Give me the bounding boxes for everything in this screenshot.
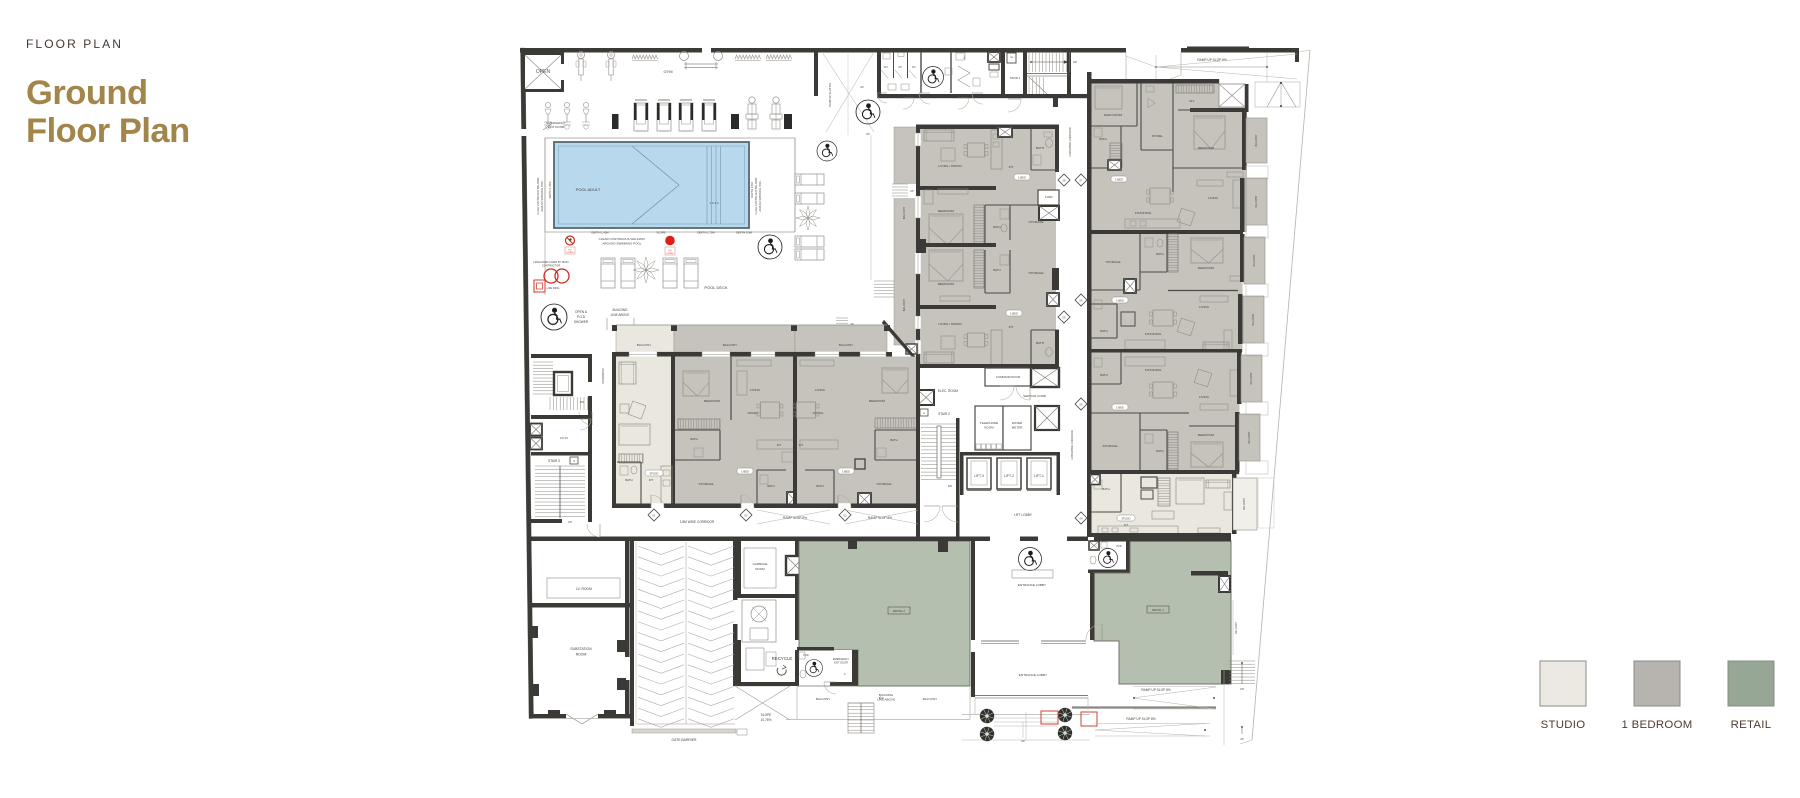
svg-text:POD: POD [803,654,808,657]
svg-text:BATH: BATH [1100,373,1107,377]
svg-text:METER: METER [1012,426,1023,430]
svg-text:Floor Plan: Floor Plan [26,112,190,150]
svg-text:CLEAR CONTINUOUS WALKWAY: CLEAR CONTINUOUS WALKWAY [599,237,646,241]
svg-text:GYM: GYM [663,69,672,74]
svg-text:SERVICE CORR.: SERVICE CORR. [1023,394,1047,398]
svg-text:STORAGE: STORAGE [1105,260,1120,264]
svg-text:UP: UP [1240,687,1244,691]
svg-text:BATH: BATH [1036,146,1044,150]
svg-text:COMMAND ROOM: COMMAND ROOM [996,375,1021,379]
svg-text:BALCONY: BALCONY [902,299,906,312]
svg-text:KIT: KIT [799,443,804,447]
svg-text:10.75%: 10.75% [761,718,772,722]
svg-text:BATH: BATH [1156,449,1163,453]
svg-text:1-BED: 1-BED [1018,176,1026,180]
svg-text:CLEAR CONTINUOUS WALKWAY: CLEAR CONTINUOUS WALKWAY [537,177,540,215]
svg-text:SLOPE: SLOPE [657,231,666,235]
svg-text:OPEN: OPEN [536,69,551,75]
svg-text:DN: DN [948,484,952,488]
svg-text:CORRIDOR: CORRIDOR [601,368,605,383]
svg-text:DN: DN [580,400,584,404]
svg-text:BEDROOM: BEDROOM [1198,146,1214,150]
svg-text:BEDROOM: BEDROOM [1198,266,1214,270]
svg-text:BATH: BATH [890,438,897,442]
svg-text:KIT: KIT [1009,325,1014,329]
svg-text:LIFT-1: LIFT-1 [1034,474,1044,478]
svg-text:RECYCLE: RECYCLE [772,656,793,661]
svg-text:RETAIL: RETAIL [1731,719,1772,731]
svg-text:SH: SH [898,66,902,69]
svg-text:BALCONY: BALCONY [1255,195,1258,207]
svg-text:LIFEGUARD CHAIR BY MAIN: LIFEGUARD CHAIR BY MAIN [534,260,569,264]
svg-text:SUBSTATION: SUBSTATION [570,647,592,651]
svg-text:KIT: KIT [1009,165,1014,169]
svg-text:AROUND SWIMMING POOL: AROUND SWIMMING POOL [759,180,762,212]
svg-text:EXIT DOOR: EXIT DOOR [548,125,565,129]
svg-text:LIFT-3: LIFT-3 [974,474,984,478]
svg-text:BALCONY: BALCONY [1253,254,1256,266]
svg-text:KIT/DINING: KIT/DINING [1135,211,1152,215]
svg-text:1.80M WIDE CORRIDOR: 1.80M WIDE CORRIDOR [1070,430,1074,460]
svg-text:ELEC. ROOM: ELEC. ROOM [938,389,958,393]
svg-text:CONTRACTOR: CONTRACTOR [542,264,560,268]
svg-text:STORAGE: STORAGE [698,482,713,486]
svg-text:Ground: Ground [26,74,148,112]
svg-text:AROUND SWIMMING POOL: AROUND SWIMMING POOL [602,242,641,246]
svg-text:RAMP UP SLOP 8%: RAMP UP SLOP 8% [1197,58,1226,62]
svg-text:1 BEDROOM: 1 BEDROOM [1621,719,1692,731]
svg-text:1-BED: 1-BED [1116,299,1124,303]
svg-text:LIVING: LIVING [1199,305,1210,309]
svg-text:BATH: BATH [1036,341,1044,345]
svg-text:TELEPHONE: TELEPHONE [980,421,998,425]
svg-text:BATH: BATH [993,268,1000,272]
svg-text:STORE: STORE [1152,134,1163,138]
svg-text:POOL DECK: POOL DECK [704,285,728,290]
svg-text:BATH: BATH [690,437,697,441]
svg-text:LIFE RING: LIFE RING [547,286,560,290]
svg-text:AROUND SWIMMING POOL: AROUND SWIMMING POOL [541,180,544,212]
svg-text:DEPTH 0.9M: DEPTH 0.9M [750,182,754,197]
svg-text:DIVING: DIVING [667,253,674,255]
svg-text:DEPTH 1.45M: DEPTH 1.45M [591,231,609,235]
svg-text:W.L: W.L [1189,99,1195,103]
svg-text:UP: UP [1073,60,1077,64]
svg-text:LIVING: LIVING [750,388,761,392]
svg-text:KIT/DINING: KIT/DINING [1145,368,1162,372]
svg-text:CCTV: CCTV [560,436,569,440]
svg-text:1-BED: 1-BED [1010,312,1018,316]
svg-text:GATE BARRIER: GATE BARRIER [672,738,698,742]
svg-text:GARBAGE: GARBAGE [753,562,768,566]
svg-text:BATH: BATH [1156,252,1163,256]
svg-text:BALCONY: BALCONY [1255,134,1258,146]
svg-text:BUILDING: BUILDING [612,308,628,312]
svg-text:ROOM: ROOM [576,653,587,657]
svg-text:UP: UP [910,189,914,193]
svg-text:LIVING: LIVING [1199,395,1210,399]
svg-text:KIT: KIT [777,443,782,447]
svg-text:WATER: WATER [1012,421,1023,425]
svg-text:BALCONY: BALCONY [923,697,937,701]
svg-text:BEDROOM: BEDROOM [938,282,954,286]
svg-text:KIT: KIT [649,478,654,482]
svg-text:SLOPE: SLOPE [761,713,772,717]
svg-text:BALCONY: BALCONY [1235,622,1238,634]
svg-text:LIFT-2: LIFT-2 [1004,474,1014,478]
svg-text:LIVING / DINING: LIVING / DINING [938,322,962,326]
svg-text:RAMP UP SLOP 8%: RAMP UP SLOP 8% [1126,717,1155,721]
svg-text:UP: UP [860,85,864,89]
svg-text:BALCONY: BALCONY [1248,431,1251,443]
svg-text:DEPTH 0.9M: DEPTH 0.9M [736,231,753,235]
svg-text:BALCONY: BALCONY [637,343,651,347]
svg-text:BATH: BATH [993,225,1000,229]
svg-text:EXIT DOOR: EXIT DOOR [834,662,848,665]
svg-text:STUDIO: STUDIO [649,473,658,476]
svg-text:UP: UP [1021,739,1025,743]
svg-text:1.80M WIDE CORRIDOR: 1.80M WIDE CORRIDOR [1068,127,1072,157]
svg-text:BALCONY: BALCONY [839,343,853,347]
svg-text:BATH: BATH [625,478,632,482]
svg-text:OPEN &: OPEN & [575,310,588,314]
svg-text:RETAIL 2: RETAIL 2 [893,609,905,613]
svg-text:BEDROOM: BEDROOM [704,399,720,403]
svg-text:BATH: BATH [767,484,774,488]
svg-text:LIVING / DINING: LIVING / DINING [938,164,962,168]
svg-text:1-BED: 1-BED [1116,406,1124,410]
svg-text:BALCONY: BALCONY [902,207,906,220]
svg-text:UP: UP [568,520,572,524]
svg-text:W.C: W.C [884,66,889,69]
svg-text:SHOWER: SHOWER [574,320,589,324]
svg-text:BALCONY: BALCONY [1250,372,1253,384]
svg-text:LINE ABOVE: LINE ABOVE [611,313,630,317]
svg-text:ROOM: ROOM [755,567,765,571]
svg-text:LIFT LOBBY: LIFT LOBBY [1014,513,1033,517]
svg-text:FHRC: FHRC [1045,195,1053,199]
svg-text:DN: DN [1010,57,1014,59]
svg-text:DEPTH 1.45M: DEPTH 1.45M [548,182,552,199]
svg-text:BATH: BATH [1099,137,1106,141]
svg-text:RAMP UP SLOP 8%: RAMP UP SLOP 8% [828,82,832,106]
svg-text:1-BED: 1-BED [842,470,850,474]
svg-text:POOL ADULT: POOL ADULT [576,187,601,192]
svg-text:ROOM: ROOM [984,426,994,430]
svg-text:BEDROOM: BEDROOM [938,209,954,213]
svg-text:P.O.D: P.O.D [577,315,586,319]
svg-text:BALCONY: BALCONY [723,343,737,347]
svg-text:STUDIO: STUDIO [1541,719,1586,731]
svg-text:RAMP UP SLOP 8%: RAMP UP SLOP 8% [1141,688,1170,692]
svg-text:1-BED: 1-BED [741,470,749,474]
svg-text:BEDROOM: BEDROOM [869,399,885,403]
svg-text:1-BED: 1-BED [1115,178,1123,182]
svg-text:LIVING: LIVING [815,388,826,392]
svg-text:CLEAR CONTINUOUS WALKWAY: CLEAR CONTINUOUS WALKWAY [755,177,758,215]
svg-text:STAIR 2: STAIR 2 [938,412,950,416]
svg-text:KIT: KIT [1124,523,1129,527]
svg-text:DIVING: DIVING [567,252,574,254]
svg-text:BATH: BATH [816,484,823,488]
svg-text:MAID ROOM: MAID ROOM [1104,113,1123,117]
svg-text:KIT/DINING: KIT/DINING [1145,332,1162,336]
svg-text:STORAGE: STORAGE [1028,271,1043,275]
svg-text:BALCONY: BALCONY [1243,498,1246,510]
svg-text:DINING: DINING [813,411,824,415]
svg-text:W.C: W.C [964,55,966,60]
svg-text:BUILDING: BUILDING [879,693,894,697]
svg-text:BALCONY: BALCONY [1252,313,1255,325]
svg-text:LV. ROOM: LV. ROOM [576,587,592,591]
svg-text:STAIR 3: STAIR 3 [548,459,560,463]
svg-text:STORAGE: STORAGE [1102,444,1117,448]
svg-text:UP: UP [866,132,870,136]
svg-text:NO: NO [569,250,572,252]
svg-text:DEPTH 1.75M: DEPTH 1.75M [697,231,715,235]
svg-text:NO: NO [669,250,672,252]
svg-text:STAIR 1: STAIR 1 [1010,76,1021,80]
svg-text:POD: POD [1116,545,1121,548]
svg-text:FLOOR PLAN: FLOOR PLAN [26,37,123,51]
svg-text:STUDIO: STUDIO [1121,518,1130,521]
svg-text:BATH: BATH [1100,329,1107,333]
svg-text:BALCONY: BALCONY [816,697,830,701]
svg-text:ENTRANCE LOBBY: ENTRANCE LOBBY [1019,673,1047,677]
svg-text:UP: UP [1240,737,1244,741]
svg-text:RETAIL 1: RETAIL 1 [1152,608,1164,612]
svg-text:STORAGE: STORAGE [876,482,891,486]
svg-text:LIVING: LIVING [1208,196,1219,200]
svg-text:BATH: BATH [1102,487,1109,491]
svg-text:1 2 3 4: 1 2 3 4 [709,201,719,205]
svg-text:ENTRANCE LOBBY: ENTRANCE LOBBY [1018,583,1046,587]
svg-text:BEDROOM: BEDROOM [1198,433,1214,437]
svg-text:DINING: DINING [748,411,759,415]
svg-text:1.8M WIDE CORRIDOR: 1.8M WIDE CORRIDOR [680,520,715,524]
svg-text:CH.: CH. [912,66,916,69]
